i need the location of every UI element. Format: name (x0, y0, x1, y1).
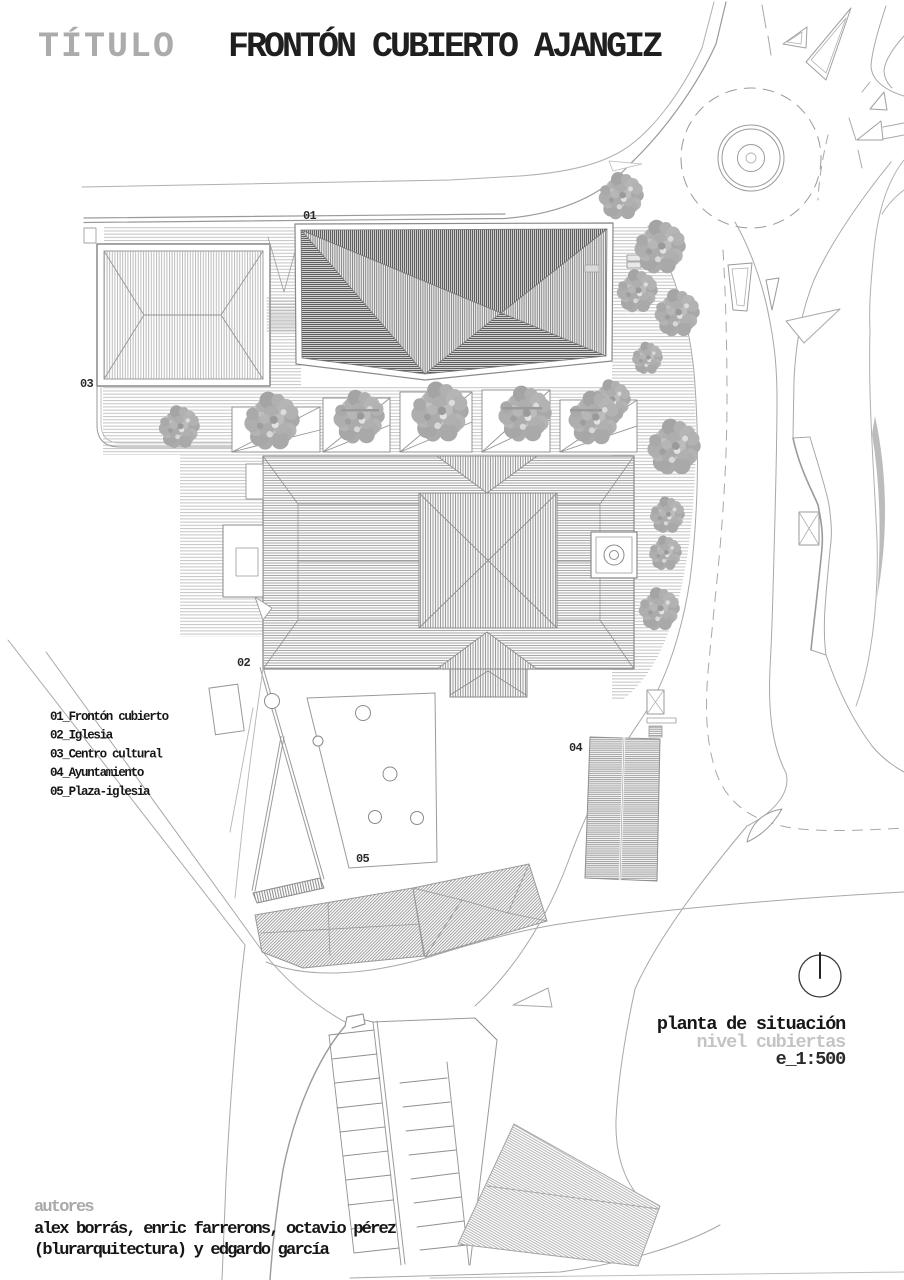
svg-text:03_Centro cultural: 03_Centro cultural (50, 747, 162, 761)
svg-text:01_Frontón cubierto: 01_Frontón cubierto (50, 710, 169, 724)
svg-text:04_Ayuntamiento: 04_Ayuntamiento (50, 766, 144, 780)
svg-text:03: 03 (80, 377, 94, 391)
svg-text:autores: autores (34, 1198, 94, 1217)
svg-text:05_Plaza-iglesia: 05_Plaza-iglesia (50, 785, 151, 799)
svg-text:alex borrás, enric farrerons,: alex borrás, enric farrerons, octavio pé… (34, 1220, 396, 1239)
svg-text:TÍTULO: TÍTULO (38, 26, 176, 67)
svg-text:02: 02 (237, 656, 251, 670)
svg-text:01: 01 (303, 209, 317, 223)
svg-text:(blurarquitectura) y edgardo g: (blurarquitectura) y edgardo garcía (34, 1241, 330, 1260)
svg-text:04: 04 (569, 741, 583, 755)
svg-text:05: 05 (356, 852, 370, 866)
svg-text:e_1:500: e_1:500 (776, 1049, 846, 1070)
svg-text:FRONTÓN CUBIERTO AJANGIZ: FRONTÓN CUBIERTO AJANGIZ (228, 26, 662, 67)
svg-text:02_Iglesia: 02_Iglesia (50, 729, 114, 743)
